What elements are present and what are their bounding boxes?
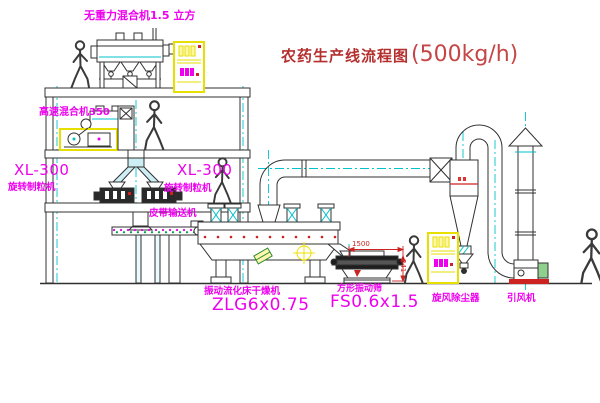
label-belt-conveyor: 皮带输送机 [149, 209, 197, 219]
control-cabinet-lower [428, 233, 458, 283]
title-capacity: (500kg/h) [411, 42, 518, 67]
label-granulator-left-name: 旋转制粒机 [8, 183, 56, 193]
gravity-free-mixer [91, 28, 179, 88]
label-fan: 引风机 [507, 294, 536, 304]
induced-draft-fan [509, 128, 549, 284]
fluid-bed-dryer [198, 204, 358, 283]
label-granulator-left-model: XL-300 [14, 163, 69, 178]
dim-sieve-length: 1500 [352, 241, 370, 248]
granulator-left [94, 188, 134, 203]
feed-hopper [118, 106, 134, 150]
rain-cap [509, 128, 542, 146]
label-dryer-model: ZLG6x0.75 [212, 297, 310, 314]
control-cabinet-upper [174, 42, 204, 92]
worker-right-edge [581, 229, 600, 282]
label-granulator-right-model: XL-300 [177, 163, 232, 178]
label-high-speed-mixer: 高速混合机350 [39, 108, 110, 118]
page-title: 农药生产线流程图(500kg/h) [281, 42, 518, 67]
label-sieve-model: FS0.6x1.5 [330, 294, 419, 311]
worker-top-floor [72, 41, 90, 87]
label-cyclone: 旋风除尘器 [432, 294, 480, 304]
worker-mid-floor [145, 101, 163, 149]
process-flow-diagram: 农药生产线流程图(500kg/h) 无重力混合机1.5 立方 高速混合机350 … [0, 0, 600, 403]
belt-conveyor [112, 212, 203, 283]
dim-sieve-height: 341 [399, 259, 406, 272]
label-granulator-right-name: 旋转制粒机 [164, 184, 212, 194]
title-text: 农药生产线流程图 [281, 45, 409, 66]
label-gravity-mixer: 无重力混合机1.5 立方 [84, 10, 195, 21]
worker-ground [405, 236, 423, 282]
